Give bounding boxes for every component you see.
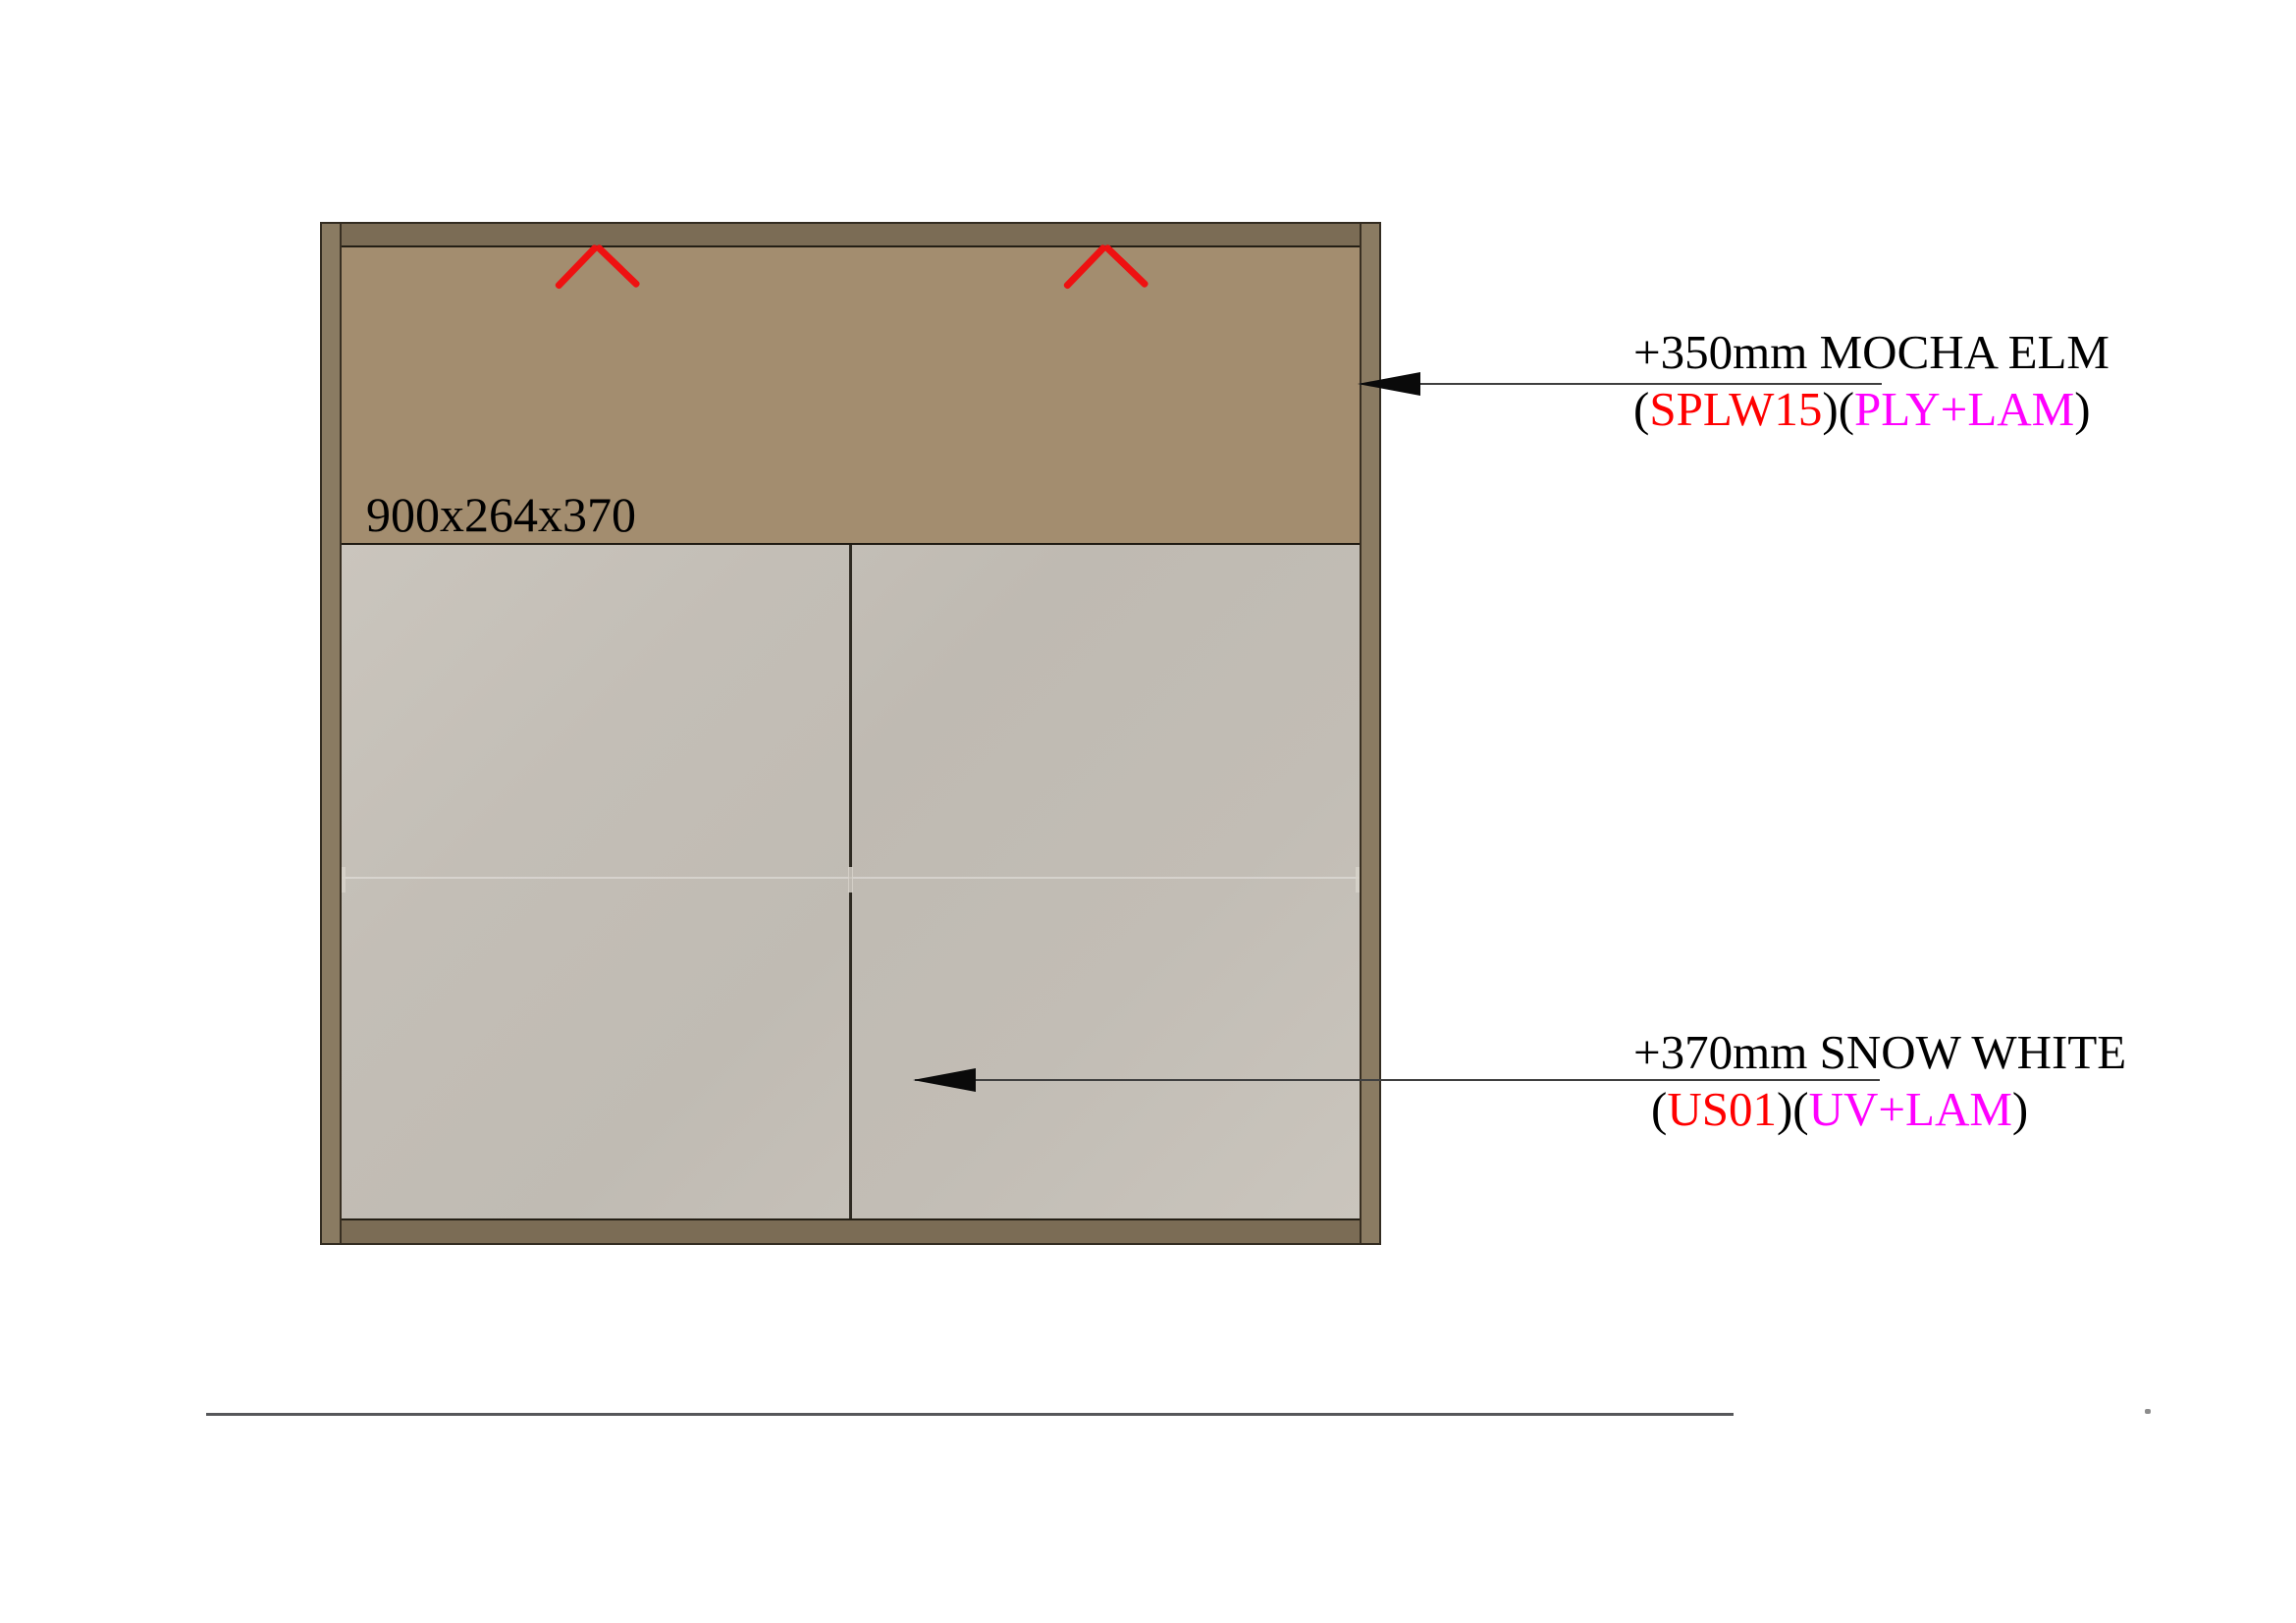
door-right xyxy=(852,545,1360,1218)
left-arrowhead-icon xyxy=(1358,372,1420,396)
paren: ) xyxy=(2012,1082,2028,1136)
cabinet-left-side-panel xyxy=(322,224,342,1243)
annotation-material-text: +370mm SNOW WHITE xyxy=(1633,1024,2126,1081)
grain-chevron-right-leg xyxy=(595,243,641,289)
paren: )( xyxy=(1777,1082,1809,1136)
cabinet-doors xyxy=(342,545,1360,1220)
shelf-pin-tick xyxy=(342,867,346,893)
shelf-pin-tick xyxy=(1356,867,1360,893)
annotation-mocha-elm: +350mm MOCHA ELM (SPLW15)(PLY+LAM) xyxy=(1633,324,2109,438)
paren: ( xyxy=(1651,1082,1667,1136)
grain-chevron-left-leg xyxy=(554,243,599,290)
grain-chevron-left-leg xyxy=(1062,243,1107,290)
mocha-elm-top-panel: 900x264x370 xyxy=(342,245,1360,545)
annotation-code-text: (SPLW15)(PLY+LAM) xyxy=(1633,381,2109,438)
annotation-snow-white: +370mm SNOW WHITE (US01)(UV+LAM) xyxy=(1633,1024,2126,1138)
shelf-pin-tick xyxy=(848,867,853,893)
door-left xyxy=(342,545,849,1218)
stray-dot-mark xyxy=(2145,1409,2151,1414)
material-code: SPLW15 xyxy=(1649,382,1822,436)
finish-code: UV+LAM xyxy=(1809,1082,2012,1136)
annotation-code-text: (US01)(UV+LAM) xyxy=(1633,1081,2126,1138)
finish-code: PLY+LAM xyxy=(1854,382,2074,436)
annotation-material-text: +350mm MOCHA ELM xyxy=(1633,324,2109,381)
title-block-rule xyxy=(206,1413,1734,1416)
paren: ( xyxy=(1633,382,1649,436)
drawing-sheet: 900x264x370 +350mm MOCHA ELM (SPLW15)(PL… xyxy=(0,0,2296,1623)
material-code: US01 xyxy=(1667,1082,1777,1136)
grain-chevron-right-leg xyxy=(1103,243,1149,289)
paren: ) xyxy=(2074,382,2090,436)
cabinet-elevation: 900x264x370 xyxy=(322,224,1379,1243)
paren: )( xyxy=(1822,382,1854,436)
left-arrowhead-icon xyxy=(913,1068,976,1092)
cabinet-dimension-label: 900x264x370 xyxy=(366,490,636,539)
